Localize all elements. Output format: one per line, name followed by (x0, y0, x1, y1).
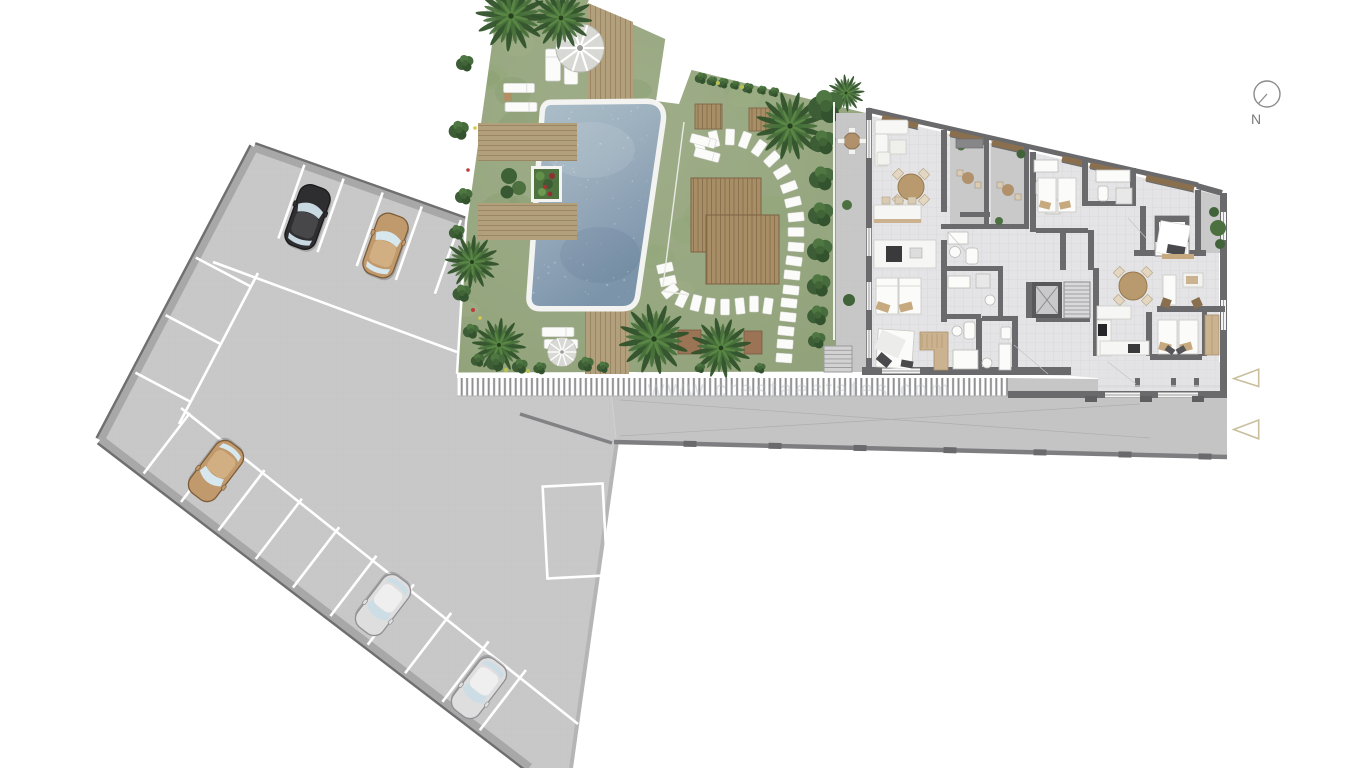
svg-text:N: N (1251, 111, 1261, 127)
svg-text:www.crestaestates.com: www.crestaestates.com (647, 376, 953, 402)
